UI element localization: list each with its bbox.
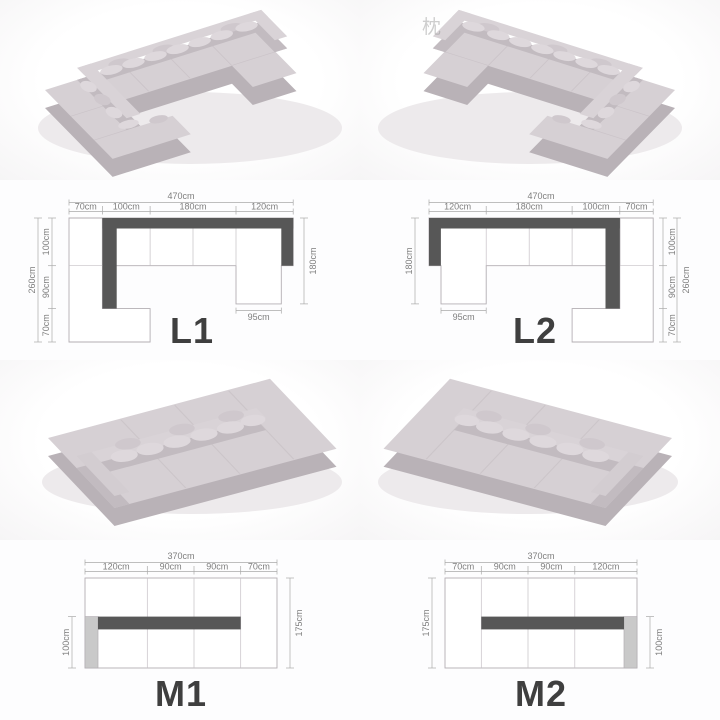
m1-armrest	[85, 617, 98, 668]
l1-total-width: 470cm	[167, 191, 194, 201]
l2-backrest-left	[429, 218, 441, 266]
diagram-L2: 470cm 120cm 180cm 100cm 70cm 180cm	[360, 180, 720, 360]
straight-sofa-render-mirror-svg	[360, 360, 720, 540]
l2-side-seg-1: 100cm	[667, 228, 677, 255]
l2-side-seg-3: 70cm	[667, 314, 677, 336]
m2-backrest	[481, 617, 624, 630]
m1-seat-depth: 100cm	[61, 629, 71, 656]
l1-right-height: 180cm	[308, 247, 318, 274]
l1-backrest-left	[102, 218, 116, 309]
m2-seg-4: 120cm	[592, 562, 619, 572]
l2-side-total: 260cm	[681, 266, 691, 293]
u-sofa-render-mirror-svg	[360, 0, 720, 180]
diagram-L1: 470cm 70cm 100cm 180cm 120cm 260cm	[0, 180, 360, 360]
u-sofa-render-svg	[0, 0, 360, 180]
l1-backrest-top	[102, 218, 293, 229]
l1-main-body	[102, 218, 293, 304]
product-spec-sheet: 枕 470cm 70cm 100cm 180cm 120cm 260cm	[0, 0, 720, 720]
diagram-L2-svg: 470cm 120cm 180cm 100cm 70cm 180cm	[360, 180, 720, 360]
m1-seg-1: 120cm	[103, 562, 130, 572]
l2-label: L2	[513, 310, 557, 351]
l2-main-body	[429, 218, 620, 304]
m2-seat-depth: 100cm	[654, 629, 664, 656]
l2-backrest-top	[429, 218, 620, 229]
m2-seg-3: 90cm	[540, 562, 562, 572]
diagram-M1: 370cm 120cm 90cm 90cm 70cm 175	[0, 540, 360, 720]
m1-seg-2: 90cm	[160, 562, 182, 572]
m1-seg-4: 70cm	[248, 562, 270, 572]
l1-seg-1: 70cm	[75, 202, 97, 212]
m1-total-width: 370cm	[167, 551, 194, 561]
l1-backrest-right	[281, 218, 293, 266]
l1-side-seg-2: 90cm	[41, 276, 51, 298]
l2-backrest-right	[606, 218, 620, 309]
m2-label: M2	[515, 673, 567, 714]
l2-total-width: 470cm	[527, 191, 554, 201]
l1-seg-3: 180cm	[179, 202, 206, 212]
watermark-text: 枕	[422, 12, 441, 39]
l1-label: L1	[170, 310, 214, 351]
m2-total-width: 370cm	[527, 551, 554, 561]
render-straight-sofa-left	[0, 360, 360, 540]
m1-seg-3: 90cm	[206, 562, 228, 572]
l1-side-total: 260cm	[27, 266, 37, 293]
l1-seg-2: 100cm	[113, 202, 140, 212]
l2-side-seg-2: 90cm	[667, 276, 677, 298]
l1-seg-4: 120cm	[251, 202, 278, 212]
render-u-sofa-right: 枕	[360, 0, 720, 180]
diagram-L1-svg: 470cm 70cm 100cm 180cm 120cm 260cm	[0, 180, 360, 360]
straight-sofa-render-svg	[0, 360, 360, 540]
l2-seg-1: 120cm	[444, 202, 471, 212]
l1-chaise-width: 95cm	[248, 312, 270, 322]
l2-seg-4: 70cm	[625, 202, 647, 212]
m2-armrest	[624, 617, 637, 668]
l2-seg-2: 180cm	[516, 202, 543, 212]
m2-side-height: 175cm	[421, 609, 431, 636]
m1-backrest	[98, 617, 241, 630]
m1-label: M1	[155, 673, 207, 714]
l1-side-seg-1: 100cm	[41, 228, 51, 255]
render-u-sofa-left	[0, 0, 360, 180]
diagram-M2: 370cm 70cm 90cm 90cm 120cm 175	[360, 540, 720, 720]
m2-seg-2: 90cm	[494, 562, 516, 572]
l2-seg-3: 100cm	[582, 202, 609, 212]
l2-left-height: 180cm	[404, 247, 414, 274]
m1-side-height: 175cm	[294, 609, 304, 636]
diagram-M1-svg: 370cm 120cm 90cm 90cm 70cm 175	[0, 540, 360, 720]
m2-seg-1: 70cm	[452, 562, 474, 572]
l1-side-seg-3: 70cm	[41, 314, 51, 336]
render-straight-sofa-right	[360, 360, 720, 540]
l2-chaise-width: 95cm	[453, 312, 475, 322]
diagram-M2-svg: 370cm 70cm 90cm 90cm 120cm 175	[360, 540, 720, 720]
